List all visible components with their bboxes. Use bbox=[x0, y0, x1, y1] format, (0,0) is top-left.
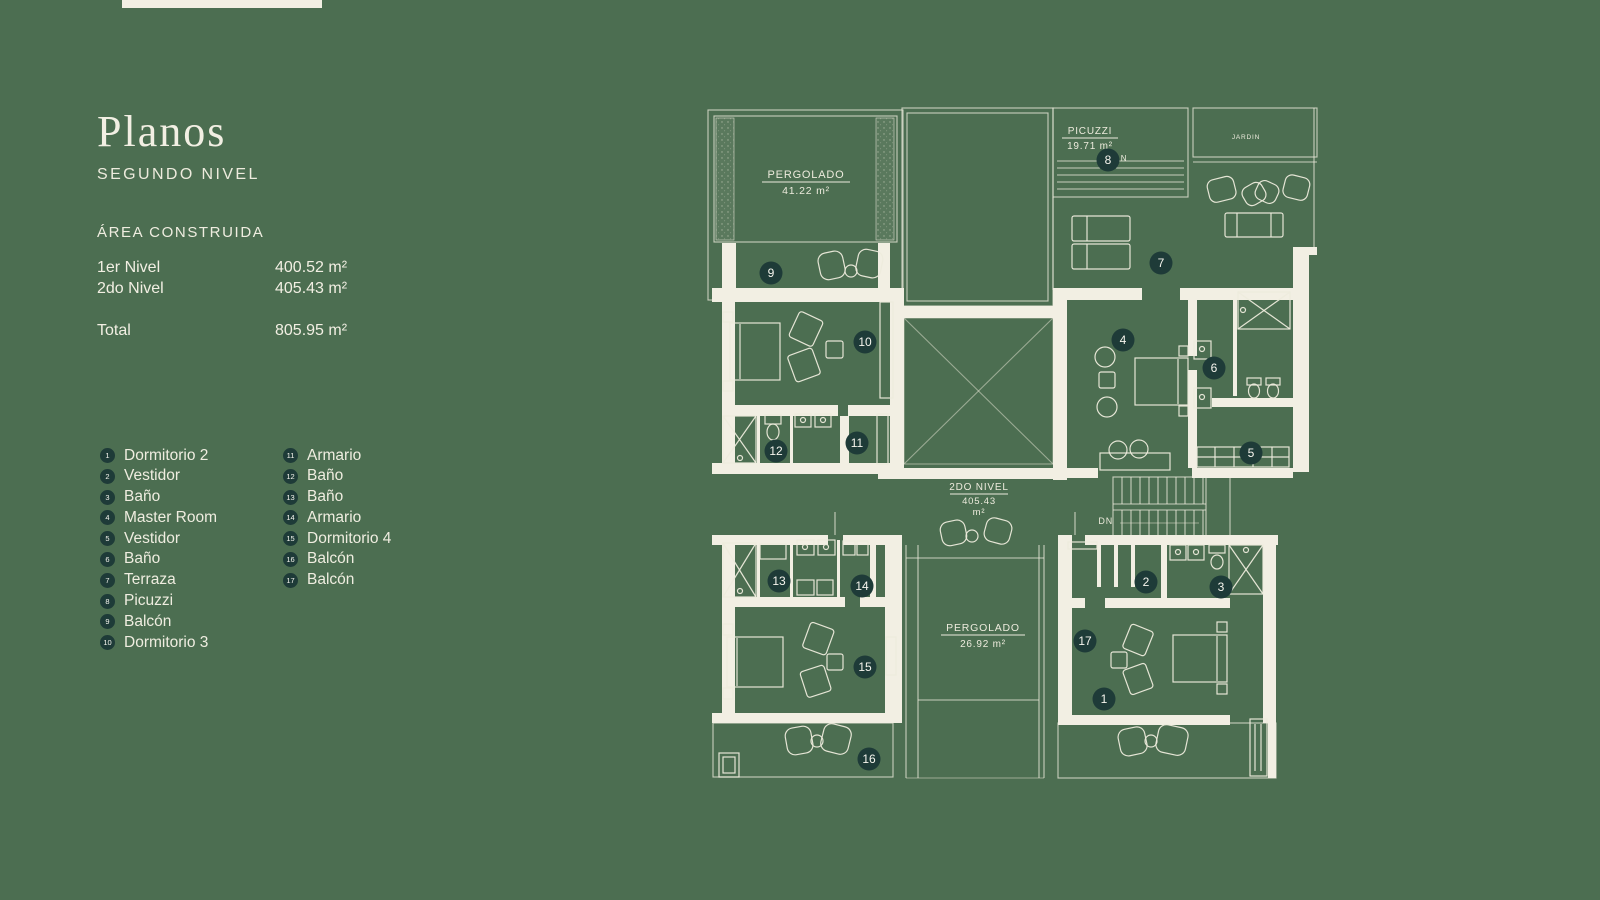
legend-badge: 14 bbox=[283, 510, 298, 525]
room-marker-1: 1 bbox=[1093, 688, 1116, 711]
area-label: 1er Nivel bbox=[97, 257, 275, 278]
legend-item: 7Terraza bbox=[100, 573, 283, 588]
legend-label: Armario bbox=[307, 509, 361, 527]
room-legend: 1Dormitorio 2 2Vestidor 3Baño 4Master Ro… bbox=[100, 448, 466, 656]
legend-item: 12Baño bbox=[283, 469, 466, 484]
floor-plan: PERGOLADO 41.22 m² PICUZZI 19.71 m² N JA… bbox=[680, 90, 1340, 800]
cabinet bbox=[797, 580, 814, 595]
legend-badge: 8 bbox=[100, 594, 115, 609]
plan-labels: PERGOLADO 41.22 m² PICUZZI 19.71 m² N JA… bbox=[762, 126, 1260, 650]
legend-badge: 9 bbox=[100, 614, 115, 629]
svg-text:2: 2 bbox=[1143, 575, 1150, 589]
room-marker-3: 3 bbox=[1210, 576, 1233, 599]
room-marker-8: 8 bbox=[1097, 149, 1120, 172]
legend-label: Dormitorio 3 bbox=[124, 634, 208, 652]
legend-item: 16Balcón bbox=[283, 552, 466, 567]
legend-item: 2Vestidor bbox=[100, 469, 283, 484]
legend-item: 11Armario bbox=[283, 448, 466, 463]
legend-label: Armario bbox=[307, 447, 361, 465]
svg-text:14: 14 bbox=[855, 579, 869, 593]
legend-label: Master Room bbox=[124, 509, 217, 527]
svg-text:3: 3 bbox=[1218, 580, 1225, 594]
room-marker-11: 11 bbox=[846, 432, 869, 455]
legend-label: Terraza bbox=[124, 571, 176, 589]
legend-badge: 10 bbox=[100, 635, 115, 650]
bed bbox=[1173, 622, 1227, 694]
room-marker-10: 10 bbox=[854, 331, 877, 354]
legend-badge: 5 bbox=[100, 531, 115, 546]
legend-label: Picuzzi bbox=[124, 592, 173, 610]
nivel-unit: m² bbox=[973, 507, 986, 518]
pergolado-bottom-label: PERGOLADO bbox=[946, 622, 1020, 634]
sink bbox=[1188, 545, 1204, 560]
svg-text:7: 7 bbox=[1158, 256, 1165, 270]
area-row-level1: 1er Nivel400.52 m² bbox=[97, 257, 557, 278]
legend-label: Dormitorio 2 bbox=[124, 447, 208, 465]
page: Planos SEGUNDO NIVEL ÁREA CONSTRUIDA 1er… bbox=[0, 0, 1600, 900]
pergolado-top-label: PERGOLADO bbox=[768, 169, 845, 181]
svg-text:6: 6 bbox=[1211, 361, 1218, 375]
info-panel: Planos SEGUNDO NIVEL ÁREA CONSTRUIDA 1er… bbox=[97, 110, 557, 341]
legend-badge: 13 bbox=[283, 490, 298, 505]
room-marker-14: 14 bbox=[851, 575, 874, 598]
svg-text:1: 1 bbox=[1101, 692, 1108, 706]
legend-badge: 1 bbox=[100, 448, 115, 463]
svg-text:5: 5 bbox=[1248, 446, 1255, 460]
legend-column-2: 11Armario 12Baño 13Baño 14Armario 15Dorm… bbox=[283, 448, 466, 656]
legend-badge: 4 bbox=[100, 510, 115, 525]
room-marker-6: 6 bbox=[1203, 357, 1226, 380]
svg-text:13: 13 bbox=[772, 574, 786, 588]
legend-badge: 3 bbox=[100, 490, 115, 505]
legend-item: 8Picuzzi bbox=[100, 594, 283, 609]
room-marker-16: 16 bbox=[858, 748, 881, 771]
stairs bbox=[1113, 477, 1230, 537]
legend-item: 9Balcón bbox=[100, 614, 283, 629]
legend-badge: 6 bbox=[100, 552, 115, 567]
legend-label: Vestidor bbox=[124, 530, 180, 548]
legend-badge: 15 bbox=[283, 531, 298, 546]
legend-label: Baño bbox=[124, 550, 160, 568]
bidet bbox=[1268, 384, 1279, 398]
area-label: Total bbox=[97, 320, 275, 341]
legend-item: 6Baño bbox=[100, 552, 283, 567]
pergolado-bottom-area: 26.92 m² bbox=[960, 639, 1006, 650]
area-value: 805.95 m² bbox=[275, 322, 347, 339]
svg-text:12: 12 bbox=[769, 444, 783, 458]
room-marker-13: 13 bbox=[768, 570, 791, 593]
north-label: N bbox=[1121, 154, 1128, 163]
legend-item: 17Balcón bbox=[283, 573, 466, 588]
area-label: 2do Nivel bbox=[97, 278, 275, 299]
svg-text:11: 11 bbox=[851, 436, 864, 450]
room-marker-9: 9 bbox=[760, 262, 783, 285]
legend-item: 14Armario bbox=[283, 510, 466, 525]
legend-item: 5Vestidor bbox=[100, 531, 283, 546]
svg-text:9: 9 bbox=[768, 266, 775, 280]
area-row-level2: 2do Nivel405.43 m² bbox=[97, 278, 557, 299]
svg-text:15: 15 bbox=[858, 660, 872, 674]
planter bbox=[1250, 719, 1267, 776]
nivel-area: 405.43 bbox=[962, 496, 996, 507]
room-marker-12: 12 bbox=[765, 440, 788, 463]
pergola-texture bbox=[876, 118, 894, 240]
header-logo-bar bbox=[122, 0, 322, 8]
legend-label: Baño bbox=[307, 467, 343, 485]
stairs-dn-label: DN bbox=[1098, 516, 1113, 526]
svg-text:10: 10 bbox=[858, 335, 872, 349]
legend-badge: 17 bbox=[283, 573, 298, 588]
legend-label: Balcón bbox=[124, 613, 171, 631]
toilet bbox=[1211, 555, 1223, 569]
shower bbox=[1229, 545, 1263, 594]
toilet bbox=[1209, 545, 1225, 553]
svg-text:17: 17 bbox=[1078, 634, 1092, 648]
built-area-section: ÁREA CONSTRUIDA 1er Nivel400.52 m² 2do N… bbox=[97, 224, 557, 341]
area-row-total: Total805.95 m² bbox=[97, 320, 557, 341]
page-subtitle: SEGUNDO NIVEL bbox=[97, 166, 557, 184]
sink bbox=[1170, 545, 1186, 560]
svg-text:16: 16 bbox=[862, 752, 876, 766]
svg-text:4: 4 bbox=[1120, 333, 1127, 347]
room-marker-7: 7 bbox=[1150, 252, 1173, 275]
pergola-texture bbox=[716, 118, 734, 240]
legend-label: Baño bbox=[307, 488, 343, 506]
legend-badge: 7 bbox=[100, 573, 115, 588]
pergolado-top-area: 41.22 m² bbox=[782, 185, 830, 197]
jardin-label: JARDIN bbox=[1232, 134, 1260, 141]
plan-walls bbox=[712, 243, 1317, 778]
legend-item: 4Master Room bbox=[100, 510, 283, 525]
planter bbox=[723, 757, 735, 773]
legend-label: Baño bbox=[124, 488, 160, 506]
lounge-chairs bbox=[1072, 216, 1130, 269]
closet bbox=[877, 414, 888, 464]
area-value: 405.43 m² bbox=[275, 280, 347, 297]
room-marker-2: 2 bbox=[1135, 571, 1158, 594]
legend-column-1: 1Dormitorio 2 2Vestidor 3Baño 4Master Ro… bbox=[100, 448, 283, 656]
toilet bbox=[760, 544, 786, 559]
legend-label: Balcón bbox=[307, 550, 354, 568]
bed bbox=[1135, 346, 1188, 416]
legend-badge: 12 bbox=[283, 469, 298, 484]
legend-item: 10Dormitorio 3 bbox=[100, 635, 283, 650]
sofa bbox=[1225, 213, 1283, 237]
legend-badge: 2 bbox=[100, 469, 115, 484]
room-marker-15: 15 bbox=[854, 656, 877, 679]
built-area-heading: ÁREA CONSTRUIDA bbox=[97, 224, 557, 241]
area-value: 400.52 m² bbox=[275, 259, 347, 276]
legend-label: Balcón bbox=[307, 571, 354, 589]
room-marker-4: 4 bbox=[1112, 329, 1135, 352]
cabinet bbox=[817, 580, 833, 595]
legend-item: 13Baño bbox=[283, 490, 466, 505]
room-marker-5: 5 bbox=[1240, 442, 1263, 465]
legend-item: 3Baño bbox=[100, 490, 283, 505]
legend-item: 1Dormitorio 2 bbox=[100, 448, 283, 463]
page-title: Planos bbox=[97, 110, 557, 154]
nivel-label: 2DO NIVEL bbox=[949, 482, 1008, 493]
legend-label: Vestidor bbox=[124, 467, 180, 485]
picuzzi-label: PICUZZI bbox=[1068, 126, 1113, 137]
legend-item: 15Dormitorio 4 bbox=[283, 531, 466, 546]
legend-badge: 11 bbox=[283, 448, 298, 463]
toilet bbox=[1249, 384, 1260, 398]
toilet bbox=[767, 424, 779, 440]
svg-text:8: 8 bbox=[1105, 153, 1112, 167]
toilet bbox=[765, 415, 781, 424]
plan-outlines bbox=[708, 108, 1317, 778]
legend-label: Dormitorio 4 bbox=[307, 530, 391, 548]
legend-badge: 16 bbox=[283, 552, 298, 567]
room-marker-17: 17 bbox=[1074, 630, 1097, 653]
